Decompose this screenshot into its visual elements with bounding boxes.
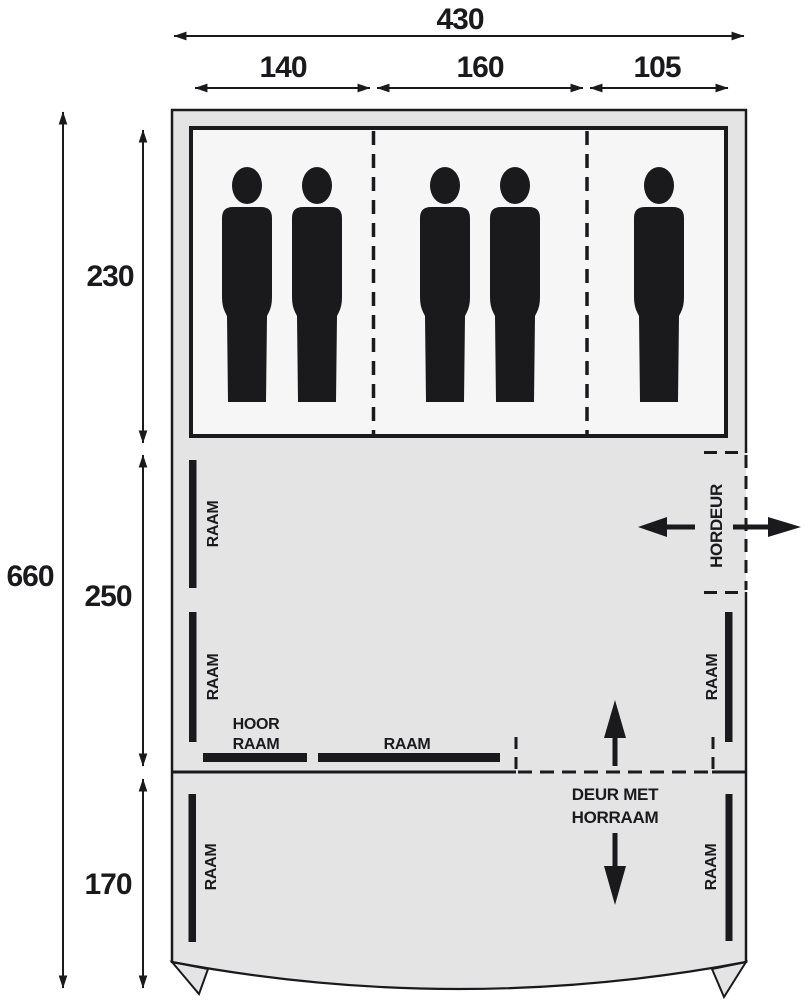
tent-floorplan-diagram: RAAM RAAM RAAM RAAM RAAM HOOR RAAM RAAM … bbox=[0, 0, 805, 1000]
dim-section-140: 140 bbox=[259, 51, 306, 84]
window-label: RAAM bbox=[704, 654, 721, 701]
screen-window-label-line1: HOOR bbox=[233, 716, 281, 733]
window-bar bbox=[726, 794, 733, 941]
window-bar bbox=[189, 794, 197, 942]
screen-window-label-line2: RAAM bbox=[233, 736, 280, 753]
dim-section-105: 105 bbox=[633, 51, 680, 84]
window-bar bbox=[189, 612, 197, 742]
front-door-label-line2: HORRAAM bbox=[572, 808, 659, 827]
window-label: RAAM bbox=[203, 844, 220, 891]
dimension-left: 660 230 250 170 bbox=[6, 112, 143, 988]
dim-section-160: 160 bbox=[456, 51, 503, 84]
window-label: RAAM bbox=[384, 736, 431, 753]
dim-section-170: 170 bbox=[84, 868, 131, 901]
dim-total-width: 430 bbox=[436, 3, 483, 36]
dim-section-250: 250 bbox=[84, 580, 131, 613]
floorplan-svg: RAAM RAAM RAAM RAAM RAAM HOOR RAAM RAAM … bbox=[0, 0, 805, 1000]
window-bar bbox=[318, 753, 500, 762]
dimension-top: 430 140 160 105 bbox=[174, 3, 744, 88]
window-bar bbox=[189, 460, 197, 588]
window-bar bbox=[725, 612, 733, 742]
front-door-label-line1: DEUR MET bbox=[572, 785, 659, 804]
dim-total-depth: 660 bbox=[6, 560, 53, 593]
arrow-right-head bbox=[768, 517, 801, 537]
window-bar bbox=[203, 753, 307, 762]
window-label: RAAM bbox=[205, 654, 222, 701]
dim-section-230: 230 bbox=[86, 260, 133, 293]
screen-door-label: HORDEUR bbox=[707, 484, 726, 568]
window-label: RAAM bbox=[703, 844, 720, 891]
window-label: RAAM bbox=[205, 501, 222, 548]
bedroom-cabin bbox=[191, 128, 726, 436]
